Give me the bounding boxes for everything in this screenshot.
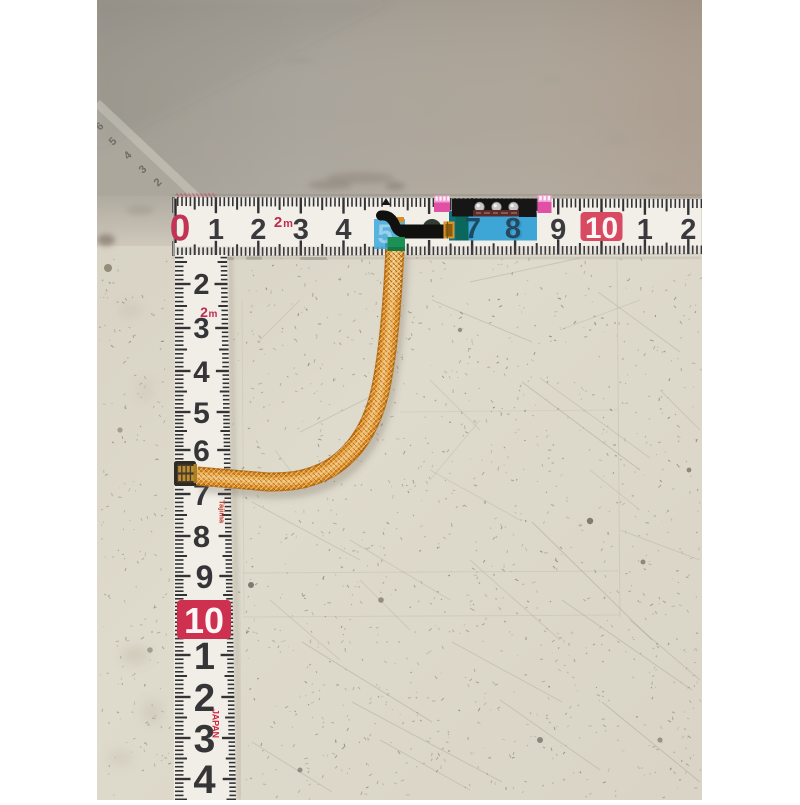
svg-text:m: m [209, 309, 218, 320]
svg-text:2: 2 [680, 214, 696, 246]
svg-text:Tajima: Tajima [218, 500, 227, 524]
svg-text:4: 4 [193, 356, 210, 389]
svg-text:4: 4 [335, 214, 351, 246]
svg-text:2: 2 [193, 269, 209, 301]
svg-text:1: 1 [208, 214, 224, 246]
svg-text:JAPAN: JAPAN [211, 709, 221, 738]
svg-text:10: 10 [184, 600, 224, 641]
svg-text:9: 9 [196, 559, 214, 595]
svg-text:1: 1 [194, 636, 215, 678]
svg-text:0: 0 [170, 208, 191, 249]
svg-text:7: 7 [465, 213, 481, 245]
svg-text:10: 10 [585, 212, 618, 245]
svg-text:2: 2 [274, 214, 282, 231]
svg-text:9: 9 [550, 214, 566, 246]
svg-text:3: 3 [293, 214, 309, 246]
svg-text:2: 2 [200, 304, 208, 320]
svg-text:2: 2 [250, 214, 266, 246]
svg-text:8: 8 [505, 213, 521, 245]
svg-text:5: 5 [193, 397, 210, 430]
svg-text:1: 1 [637, 214, 653, 246]
svg-text:4: 4 [193, 758, 216, 800]
svg-text:8: 8 [193, 519, 210, 554]
svg-text:m: m [283, 218, 293, 230]
